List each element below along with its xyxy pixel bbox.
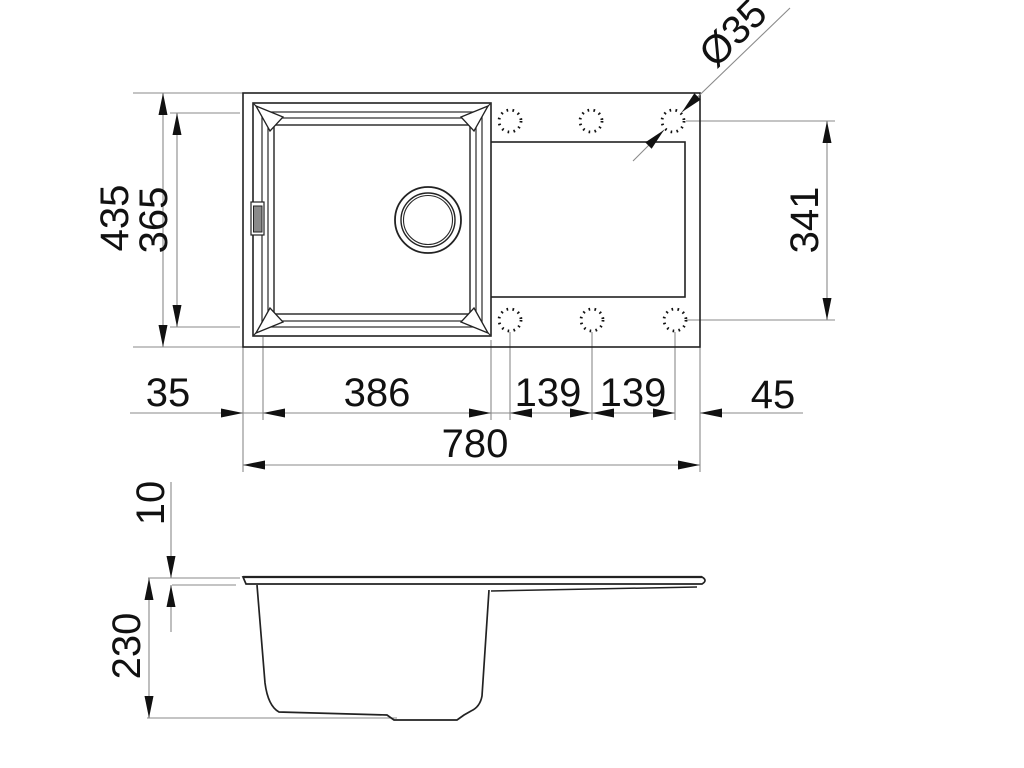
sink-drawing-canvas: 435 365 Ø35 341 35 386 139 139 45 780 bbox=[0, 0, 1024, 768]
dim-overall-width: 780 bbox=[442, 422, 509, 466]
bowl bbox=[251, 103, 491, 336]
tap-hole bbox=[664, 309, 686, 331]
tap-hole bbox=[580, 110, 602, 132]
dim-tap-hole-spacing-b: 139 bbox=[600, 371, 667, 415]
tap-hole bbox=[662, 110, 684, 132]
dim-right-edge-to-hole: 45 bbox=[751, 373, 796, 417]
dim-left-rim-width: 35 bbox=[146, 371, 191, 415]
dim-overall-depth: 435 bbox=[93, 185, 137, 252]
tap-hole bbox=[499, 110, 521, 132]
drainer-panel bbox=[489, 142, 685, 297]
drainer-slope-line bbox=[491, 587, 697, 591]
tap-hole bbox=[581, 309, 603, 331]
side-view: 10 230 bbox=[105, 481, 705, 720]
overflow-slot bbox=[251, 202, 264, 235]
dim-tap-hole-row-span: 341 bbox=[783, 187, 827, 254]
dim-bowl-depth: 230 bbox=[105, 613, 149, 680]
dim-tap-hole-diameter: Ø35 bbox=[691, 0, 776, 76]
extension-lines-side-view bbox=[147, 578, 397, 718]
tap-holes bbox=[499, 110, 686, 331]
sink-section-profile bbox=[243, 577, 705, 720]
dim-bowl-opening-depth: 365 bbox=[132, 187, 176, 254]
tap-hole bbox=[499, 309, 521, 331]
dim-bowl-opening-width: 386 bbox=[344, 371, 411, 415]
top-view: 435 365 Ø35 341 35 386 139 139 45 780 bbox=[93, 0, 835, 472]
bowl-section-profile bbox=[257, 585, 489, 720]
dim-rim-thickness: 10 bbox=[129, 481, 173, 526]
technical-drawing-page: 435 365 Ø35 341 35 386 139 139 45 780 bbox=[0, 0, 1024, 768]
dim-tap-hole-spacing-a: 139 bbox=[515, 371, 582, 415]
dimension-labels-side-view: 10 230 bbox=[105, 481, 173, 680]
